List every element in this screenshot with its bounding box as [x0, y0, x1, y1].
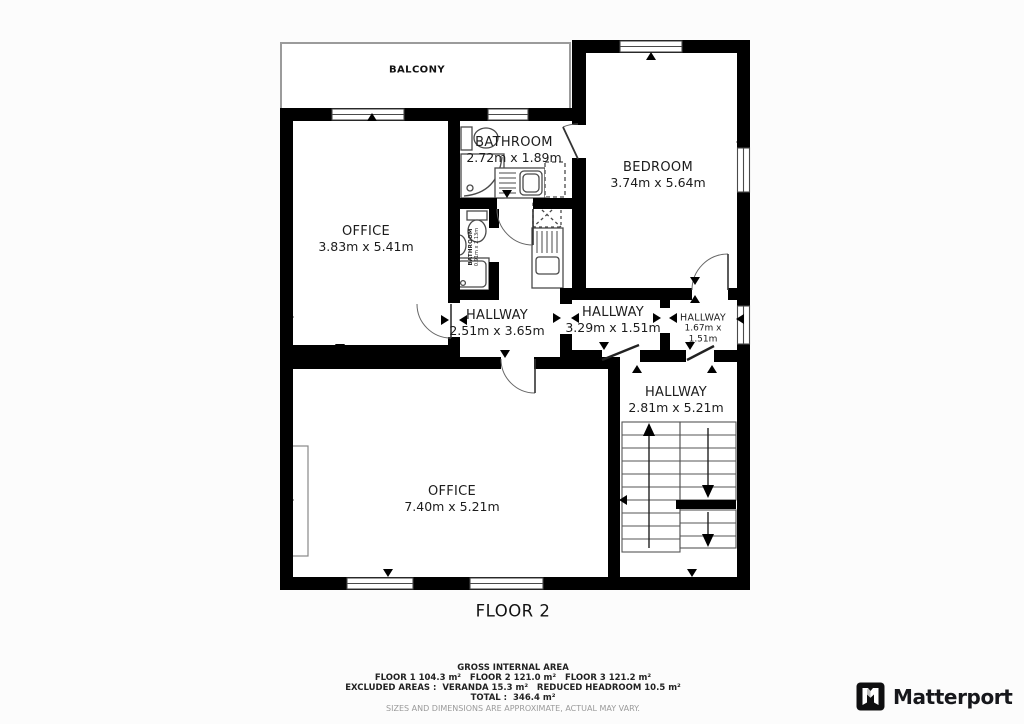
summary-floors: FLOOR 1 104.3 m² FLOOR 2 121.0 m² FLOOR … — [345, 673, 681, 683]
matterport-logo-text: Matterport — [893, 685, 1012, 709]
floor-title: FLOOR 2 — [476, 602, 551, 621]
room-label-balcony: BALCONY — [389, 65, 445, 76]
room-label-hallway-stairs: HALLWAY 2.81m x 5.21m — [628, 385, 723, 415]
floor-plan-page: BALCONY BATHROOM 2.72m x 1.89m BEDROOM 3… — [0, 0, 1024, 724]
window — [738, 148, 750, 192]
room-label-bathroom: BATHROOM 2.72m x 1.89m — [466, 135, 561, 165]
kitchen-sink-icon — [536, 257, 559, 274]
summary-title: GROSS INTERNAL AREA — [345, 663, 681, 673]
room-label-office-bottom: OFFICE 7.40m x 5.21m — [404, 484, 499, 514]
room-label-hallway-mid: HALLWAY 3.29m x 1.51m — [565, 305, 660, 335]
window — [332, 109, 404, 120]
balcony-outline — [281, 43, 570, 112]
room-label-bedroom: BEDROOM 3.74m x 5.64m — [610, 160, 705, 190]
window — [488, 109, 528, 120]
room-label-hallway-small: HALLWAY 1.67m x 1.51m — [680, 313, 726, 346]
appliance-dashed-icon — [545, 162, 565, 197]
summary-excluded: EXCLUDED AREAS : VERANDA 15.3 m² REDUCED… — [345, 683, 681, 693]
window — [620, 41, 682, 52]
room-label-office-top: OFFICE 3.83m x 5.41m — [318, 224, 413, 254]
summary-total: TOTAL : 346.4 m² — [345, 693, 681, 703]
area-summary: GROSS INTERNAL AREA FLOOR 1 104.3 m² FLO… — [345, 663, 681, 714]
window — [470, 578, 543, 589]
window — [347, 578, 413, 589]
matterport-logo-icon — [856, 682, 885, 711]
toilet-small-icon — [467, 211, 487, 220]
room-label-bathroom-small: BATHROOM 0.91m x 2.13m — [468, 228, 480, 266]
window — [738, 306, 750, 344]
room-label-hallway-main: HALLWAY 2.51m x 3.65m — [449, 308, 544, 338]
summary-disclaimer: SIZES AND DIMENSIONS ARE APPROXIMATE, AC… — [345, 704, 681, 714]
matterport-branding: Matterport — [856, 682, 1012, 711]
